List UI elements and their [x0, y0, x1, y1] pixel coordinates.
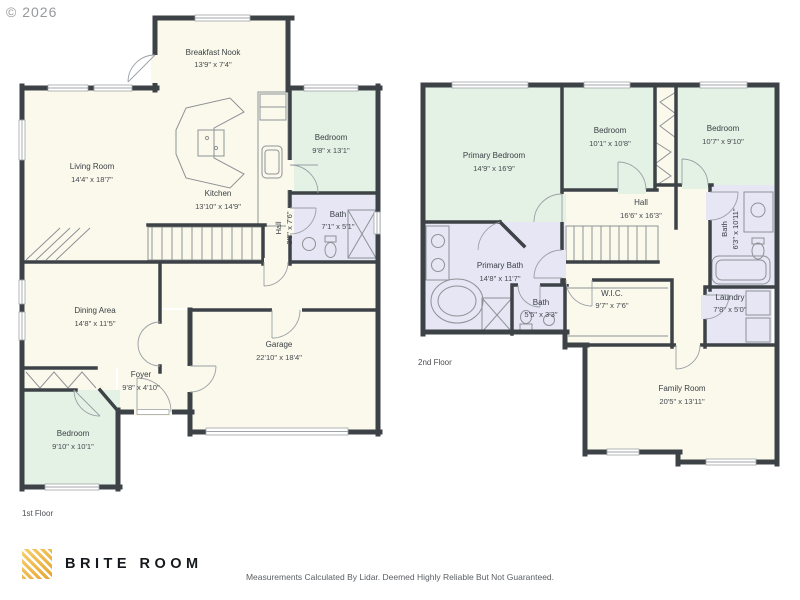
room-garage-fill	[190, 310, 378, 432]
brand-name: BRITE ROOM	[65, 556, 203, 572]
room-label-wic: W.I.C.	[601, 289, 623, 298]
disclaimer-text: Measurements Calculated By Lidar. Deemed…	[0, 572, 800, 582]
room-label-foyer: Foyer	[131, 370, 152, 379]
room-label-bath2: Bath	[720, 221, 729, 237]
floorplan-page: © 2026	[0, 0, 800, 600]
room-label-bedroom4: Bedroom	[707, 124, 740, 133]
room-label-bedroom2: Bedroom	[57, 429, 90, 438]
room-dims-foyer: 9'8" x 4'10"	[122, 383, 160, 392]
room-dims-dining: 14'8" x 11'5"	[74, 319, 115, 328]
room-closet-fill	[24, 368, 116, 390]
room-dims-living-room: 14'4" x 18'7"	[71, 175, 113, 184]
room-dims-bedroom2: 9'10" x 10'1"	[52, 442, 94, 451]
room-label-hall2: Hall	[634, 198, 648, 207]
room-label-kitchen: Kitchen	[205, 189, 232, 198]
room-bedroom2-fill	[24, 390, 120, 487]
room-label-primary-bath: Primary Bath	[477, 261, 523, 270]
room-dims-kitchen: 13'10" x 14'9"	[195, 202, 241, 211]
room-dims-hall1: 3'8" x 7'6"	[285, 211, 294, 245]
room-dims-bedroom4: 10'7" x 9'10"	[702, 137, 744, 146]
second-floor-plan: Primary Bedroom 14'9" x 16'9" Bedroom 10…	[418, 82, 777, 465]
room-label-laundry: Laundry	[716, 293, 745, 302]
room-label-hall1: Hall	[274, 221, 283, 234]
room-closets-fill	[655, 87, 676, 190]
first-floor-label: 1st Floor	[22, 509, 53, 518]
room-label-living-room: Living Room	[70, 162, 115, 171]
room-bedroom4-fill	[676, 87, 775, 185]
room-label-breakfast-nook: Breakfast Nook	[186, 48, 242, 57]
room-label-family-room: Family Room	[658, 384, 705, 393]
room-dims-primary-bedroom: 14'9" x 16'9"	[473, 164, 515, 173]
room-dims-bath3: 5'5" x 3'3"	[524, 310, 558, 319]
room-corridor-fill	[672, 288, 705, 345]
room-dims-family-room: 20'5" x 13'11"	[659, 397, 705, 406]
room-dims-hall2: 16'6" x 16'3"	[620, 211, 662, 220]
room-label-dining: Dining Area	[74, 306, 116, 315]
room-label-bedroom3: Bedroom	[594, 126, 627, 135]
first-floor-plan: Breakfast Nook 13'9" x 7'4" Living Room …	[19, 15, 380, 518]
room-dims-bedroom3: 10'1" x 10'8"	[589, 139, 631, 148]
room-dims-primary-bath: 14'8" x 11'7"	[479, 274, 520, 283]
room-dims-wic: 9'7" x 7'6"	[595, 301, 629, 310]
room-foyer-fill	[118, 310, 190, 412]
room-label-bath1: Bath	[330, 210, 346, 219]
room-dims-bath1: 7'1" x 5'1"	[321, 222, 355, 231]
room-hall2-fill	[562, 190, 672, 280]
room-label-primary-bedroom: Primary Bedroom	[463, 151, 526, 160]
floorplan-drawing: Breakfast Nook 13'9" x 7'4" Living Room …	[0, 0, 800, 600]
room-label-garage: Garage	[266, 340, 293, 349]
room-dims-breakfast-nook: 13'9" x 7'4"	[194, 60, 232, 69]
second-floor-label: 2nd Floor	[418, 358, 452, 367]
room-dims-bath2: 6'3" x 10'11"	[731, 208, 740, 249]
room-dims-garage: 22'10" x 18'4"	[256, 353, 302, 362]
room-label-bath3: Bath	[533, 298, 549, 307]
room-label-bedroom1: Bedroom	[315, 133, 348, 142]
room-dims-bedroom1: 9'8" x 13'1"	[312, 146, 350, 155]
room-dims-laundry: 7'8" x 5'0"	[713, 305, 747, 314]
